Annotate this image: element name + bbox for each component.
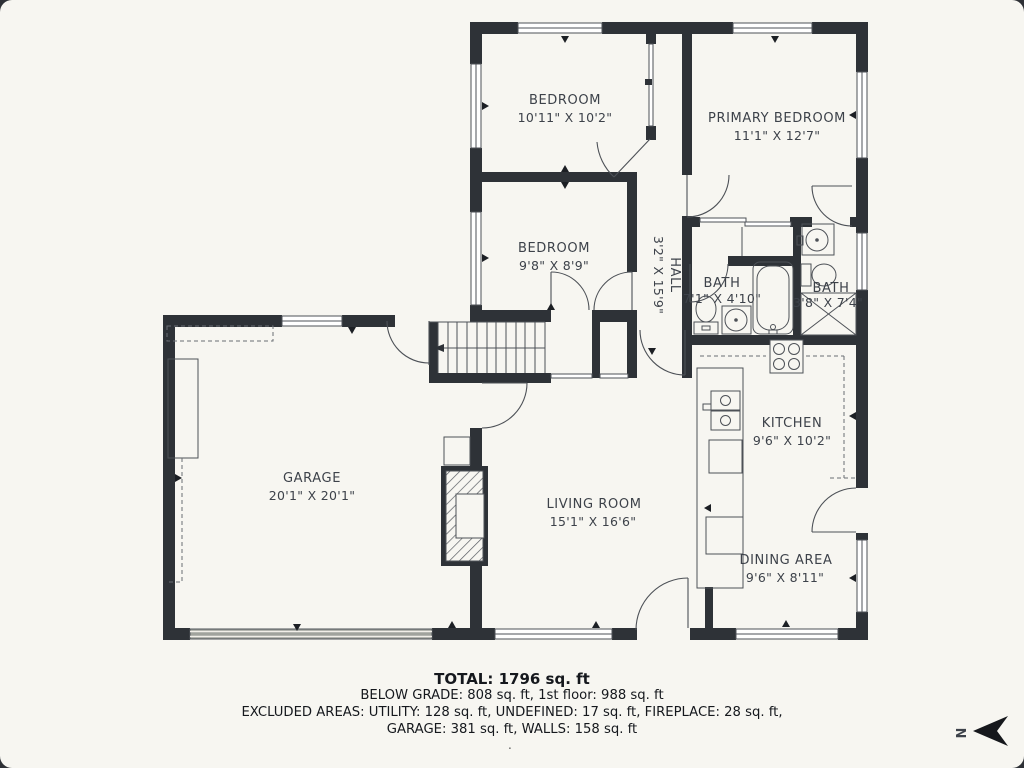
room-dims: 3'2" X 15'9": [651, 236, 666, 314]
window: [733, 23, 812, 33]
window: [471, 212, 481, 305]
door-bedroom-2: [594, 272, 632, 310]
hearth-cabinet: [444, 437, 470, 465]
sink: [797, 224, 834, 255]
bath-2-fixtures: [797, 224, 856, 335]
door-hall-entry: [640, 330, 685, 375]
room-label: DINING AREA: [740, 553, 833, 568]
kitchen-sink: [703, 391, 740, 430]
room-dims: 7'1" X 4'10": [683, 291, 761, 306]
door-primary-bedroom: [687, 175, 729, 217]
room-label: PRIMARY BEDROOM: [708, 111, 846, 126]
garage-walls-areas: GARAGE: 381 sq. ft, WALLS: 158 sq. ft: [0, 722, 1024, 739]
door-primary-to-bath: [812, 186, 852, 226]
door-living-exterior: [636, 578, 688, 630]
room-label: BEDROOM: [518, 241, 590, 256]
staircase: [429, 322, 545, 373]
grade-areas: BELOW GRADE: 808 sq. ft, 1st floor: 988 …: [0, 688, 1024, 705]
closet-slider: [745, 222, 791, 226]
kitchen-counter: [697, 368, 743, 588]
garage-door: [190, 629, 432, 639]
fireplace: [446, 471, 484, 561]
window: [857, 540, 867, 612]
room-kitchen: KITCHEN 9'6" X 10'2": [753, 416, 831, 448]
room-dims: 15'1" X 16'6": [550, 514, 637, 529]
door-garage-to-living: [482, 383, 527, 428]
closet-door: [600, 374, 628, 378]
window: [857, 233, 867, 290]
room-label: LIVING ROOM: [546, 497, 641, 512]
closet-door: [551, 374, 592, 378]
window: [495, 629, 612, 639]
partition-mark: [645, 79, 652, 85]
room-bath-1: BATH 7'1" X 4'10": [683, 276, 761, 306]
kitchen-fixtures: [697, 340, 856, 588]
door-bedroom-1: [597, 139, 650, 177]
room-label: BEDROOM: [529, 93, 601, 108]
floor-plan: BEDROOM 10'11" X 10'2" PRIMARY BEDROOM 1…: [0, 0, 1024, 768]
room-dims: 9'6" X 8'11": [746, 570, 824, 585]
room-dims: 10'11" X 10'2": [518, 110, 613, 125]
window: [857, 72, 867, 158]
window: [471, 64, 481, 148]
room-dims: 11'1" X 12'7": [734, 128, 821, 143]
room-dims: 3'8" X 7'4": [793, 295, 863, 310]
window: [736, 629, 838, 639]
floor-plan-page: BEDROOM 10'11" X 10'2" PRIMARY BEDROOM 1…: [0, 0, 1024, 768]
sink: [722, 306, 751, 334]
room-dining-area: DINING AREA 9'6" X 8'11": [740, 553, 833, 585]
room-label: BATH: [704, 276, 741, 291]
stove: [770, 340, 803, 373]
excluded-areas: EXCLUDED AREAS: UTILITY: 128 sq. ft, UND…: [0, 705, 1024, 722]
door-garage-side: [387, 321, 429, 365]
room-bedroom-1: BEDROOM 10'11" X 10'2": [518, 93, 613, 125]
room-label: HALL: [667, 257, 682, 293]
room-dims: 20'1" X 20'1": [269, 488, 356, 503]
dishwasher: [709, 440, 742, 473]
room-label: BATH: [813, 281, 850, 296]
room-label: KITCHEN: [762, 416, 823, 431]
area-summary: TOTAL: 1796 sq. ft BELOW GRADE: 808 sq. …: [0, 670, 1024, 738]
room-dims: 9'8" X 8'9": [519, 258, 589, 273]
closet-slider: [700, 218, 746, 222]
room-label: GARAGE: [283, 471, 341, 486]
garage-features: [167, 326, 273, 582]
footer-dot: .: [508, 738, 512, 752]
room-hall: HALL 3'2" X 15'9": [651, 236, 682, 314]
room-primary-bedroom: PRIMARY BEDROOM 11'1" X 12'7": [708, 111, 846, 143]
total-area: TOTAL: 1796 sq. ft: [0, 670, 1024, 688]
room-dims: 9'6" X 10'2": [753, 433, 831, 448]
window: [518, 23, 602, 33]
window: [282, 316, 342, 326]
room-bath-2: BATH 3'8" X 7'4": [793, 281, 863, 310]
door-bedroom-2-closet: [551, 272, 589, 310]
door-dining-exterior: [812, 488, 856, 532]
room-living-room: LIVING ROOM 15'1" X 16'6": [546, 497, 641, 529]
kitchen-appliance: [706, 517, 743, 554]
room-garage: GARAGE 20'1" X 20'1": [269, 471, 356, 503]
room-bedroom-2: BEDROOM 9'8" X 8'9": [518, 241, 590, 273]
